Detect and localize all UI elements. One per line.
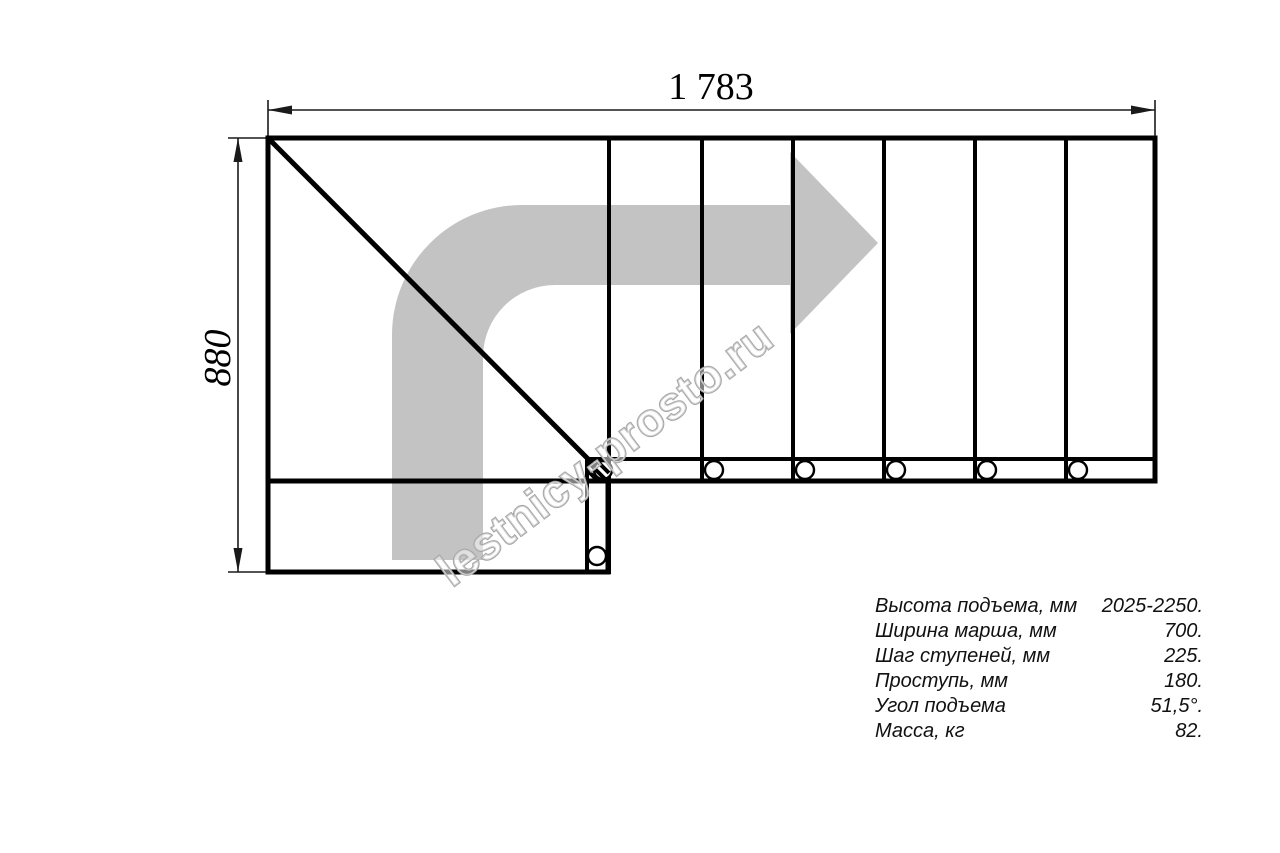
spec-label: Проступь, мм [875,669,1008,694]
dimension-height: 880 [197,138,266,572]
bolt-hole [796,461,814,479]
spec-value: 180. [1164,669,1203,694]
spec-label: Масса, кг [875,719,965,744]
spec-value: 2025-2250. [1102,594,1203,619]
spec-value: 82. [1175,719,1203,744]
staircase-plan-page: 1 783 880 lestnicy-prosto.ru Высота подъ… [0,0,1280,853]
spec-table: Высота подъема, мм 2025-2250. Ширина мар… [875,594,1203,744]
spec-row-flight-width: Ширина марша, мм 700. [875,619,1203,644]
bolt-hole [588,547,606,565]
spec-value: 51,5°. [1151,694,1203,719]
dimension-arrow-right-icon [1131,106,1155,115]
spec-row-tread: Проступь, мм 180. [875,669,1203,694]
dimension-arrow-up-icon [234,138,243,162]
bolt-hole [1069,461,1087,479]
bolt-hole [978,461,996,479]
bolt-hole [705,461,723,479]
width-dimension-label: 1 783 [668,66,754,108]
spec-row-height: Высота подъема, мм 2025-2250. [875,594,1203,619]
spec-row-step-pitch: Шаг ступеней, мм 225. [875,644,1203,669]
spec-label: Шаг ступеней, мм [875,644,1050,669]
dimension-width: 1 783 [268,66,1155,136]
spec-row-mass: Масса, кг 82. [875,719,1203,744]
spec-row-angle: Угол подъема 51,5°. [875,694,1203,719]
spec-value: 225. [1164,644,1203,669]
dimension-arrow-left-icon [268,106,292,115]
height-dimension-label: 880 [197,330,239,387]
spec-label: Высота подъема, мм [875,594,1077,619]
spec-label: Угол подъема [875,694,1006,719]
dimension-arrow-down-icon [234,548,243,572]
bolt-hole [887,461,905,479]
spec-value: 700. [1164,619,1203,644]
direction-arrow [392,152,878,560]
spec-label: Ширина марша, мм [875,619,1057,644]
